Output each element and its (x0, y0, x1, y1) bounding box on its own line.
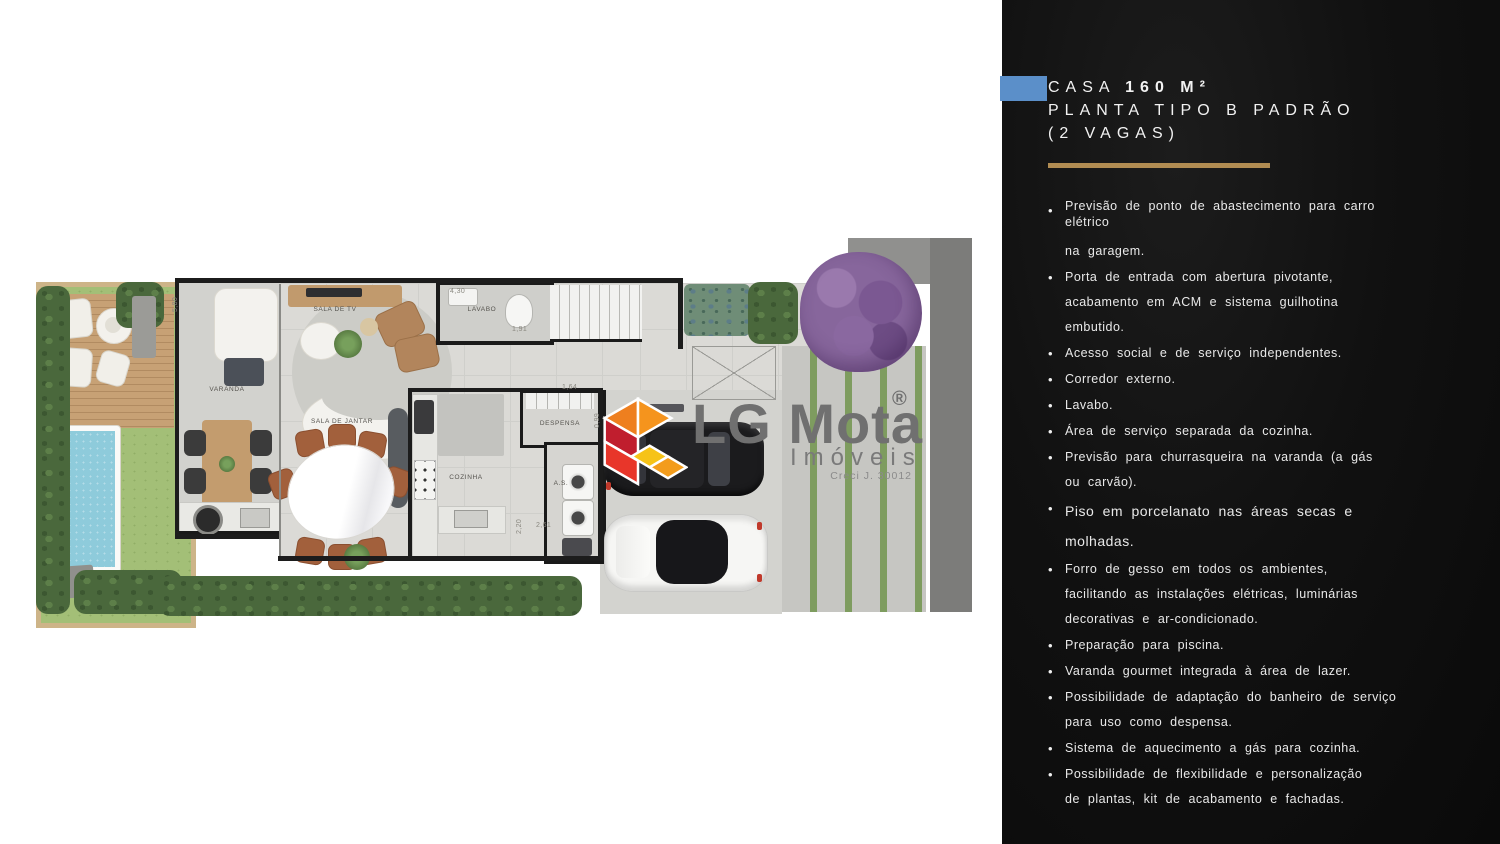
feature-item: • Varanda gourmet integrada à área de la… (1048, 659, 1488, 684)
bullet-dot: • (1048, 690, 1053, 705)
dim-label: 5,80 (172, 297, 179, 312)
laundry-tank (562, 538, 592, 556)
feature-item: • Possibilidade de flexibilidade e perso… (1048, 762, 1488, 812)
wall-varanda-bottom (175, 534, 281, 539)
accent-rectangle (1000, 76, 1047, 101)
room-label-despensa: DESPENSA (522, 420, 598, 427)
title-line-3: (2 VAGAS) (1048, 122, 1478, 145)
bullet-dot: • (1048, 398, 1053, 413)
dryer (562, 500, 594, 536)
gold-divider (1048, 163, 1270, 168)
bullet-dot: • (1048, 562, 1053, 577)
glass-door-track (279, 284, 281, 556)
dim-label: 1,91 (512, 326, 527, 333)
kitchen-sink (414, 400, 434, 434)
feature-item: • Forro de gesso em todos os ambientes, … (1048, 557, 1488, 632)
title-line-2: PLANTA TIPO B PADRÃO (1048, 99, 1478, 122)
wall-varanda-left (175, 278, 179, 539)
outdoor-chair (184, 430, 206, 456)
wall-house-bottom (278, 556, 604, 561)
title-casa: CASA (1048, 79, 1125, 96)
info-panel: CASA 160 M² PLANTA TIPO B PADRÃO (2 VAGA… (1002, 0, 1500, 844)
feature-item: • Lavabo. (1048, 393, 1488, 418)
room-label-sala-jantar: SALA DE JANTAR (296, 418, 388, 425)
car-taillight (757, 522, 762, 530)
outdoor-sink (240, 508, 270, 528)
stove (414, 460, 436, 500)
feature-item: • Porta de entrada com abertura pivotant… (1048, 265, 1488, 340)
table-plant (219, 456, 235, 472)
room-label-sala-tv: SALA DE TV (300, 306, 370, 313)
room-label-cozinha: COZINHA (436, 474, 496, 481)
car-taillight (757, 574, 762, 582)
feature-item: • Corredor externo. (1048, 367, 1488, 392)
barbecue-grill (193, 505, 223, 535)
bullet-dot: • (1048, 270, 1053, 285)
outdoor-sofa (214, 288, 278, 362)
bullet-dot: • (1048, 664, 1053, 679)
planter-box (132, 296, 156, 358)
bullet-dot: • (1048, 501, 1053, 516)
feature-item: • Preparação para piscina. (1048, 633, 1488, 658)
staircase (550, 285, 642, 342)
wall-stairs-right (678, 283, 683, 349)
feature-item: • Sistema de aquecimento a gás para cozi… (1048, 736, 1488, 761)
title-area: 160 M² (1125, 79, 1211, 96)
pantry-shelves (526, 393, 594, 409)
outdoor-chair (184, 468, 206, 494)
white-car (604, 506, 766, 598)
feature-item: • Acesso social e de serviço independent… (1048, 341, 1488, 366)
room-label-as: A.S. (546, 480, 576, 487)
groundcover-bed (684, 284, 750, 336)
wall-top (175, 278, 683, 283)
bullet-dot: • (1048, 638, 1053, 653)
purple-tree (800, 252, 922, 372)
plan-title: CASA 160 M² PLANTA TIPO B PADRÃO (2 VAGA… (1048, 76, 1478, 145)
dim-label: 1,64 (562, 384, 577, 391)
feature-item: • Piso em porcelanato nas áreas secas e … (1048, 496, 1488, 556)
bullet-dot: • (1048, 767, 1053, 782)
hedge-bottom-row (158, 576, 582, 616)
feature-item: • Previsão para churrasqueira na varanda… (1048, 445, 1488, 495)
title-line-1: CASA 160 M² (1048, 76, 1478, 99)
hedge-left (36, 286, 70, 614)
dim-label: 2,20 (516, 519, 523, 534)
bullet-dot: • (1048, 346, 1053, 361)
dim-label: 2,61 (536, 522, 551, 529)
island-sink (454, 510, 488, 528)
bullet-dot: • (1048, 424, 1053, 439)
feature-item: • Possibilidade de adaptação do banheiro… (1048, 685, 1488, 735)
bullet-dot: • (1048, 741, 1053, 756)
shrub-bed (748, 282, 798, 344)
page: SALA DE TV VARANDA SALA DE JANTAR COZINH… (0, 0, 1500, 844)
feature-item: • Previsão de ponto de abastecimento par… (1048, 198, 1488, 264)
dining-chair (294, 536, 326, 566)
logo-subtitle: Imóveis (790, 444, 908, 472)
floor-plan: SALA DE TV VARANDA SALA DE JANTAR COZINH… (0, 0, 1002, 844)
bullet-dot: • (1048, 203, 1053, 218)
registered-trademark-icon: ® (892, 388, 907, 411)
car-roof-glass (656, 520, 728, 584)
kitchen-cabinet (438, 394, 504, 456)
room-label-lavabo: LAVABO (452, 306, 512, 313)
room-label-varanda: VARANDA (196, 386, 258, 393)
car-hood (616, 526, 650, 578)
bullet-dot: • (1048, 450, 1053, 465)
logo-license: Creci J. 30012 (822, 470, 912, 482)
tv (306, 288, 362, 297)
dim-label: 4,30 (450, 288, 465, 295)
living-plant (334, 330, 362, 358)
logo-cube-icon (588, 390, 688, 498)
feature-list: • Previsão de ponto de abastecimento par… (1048, 198, 1488, 813)
bullet-dot: • (1048, 372, 1053, 387)
feature-item: • Área de serviço separada da cozinha. (1048, 419, 1488, 444)
side-table (360, 318, 378, 336)
outdoor-coffee-table (224, 358, 264, 386)
outdoor-chair (250, 430, 272, 456)
